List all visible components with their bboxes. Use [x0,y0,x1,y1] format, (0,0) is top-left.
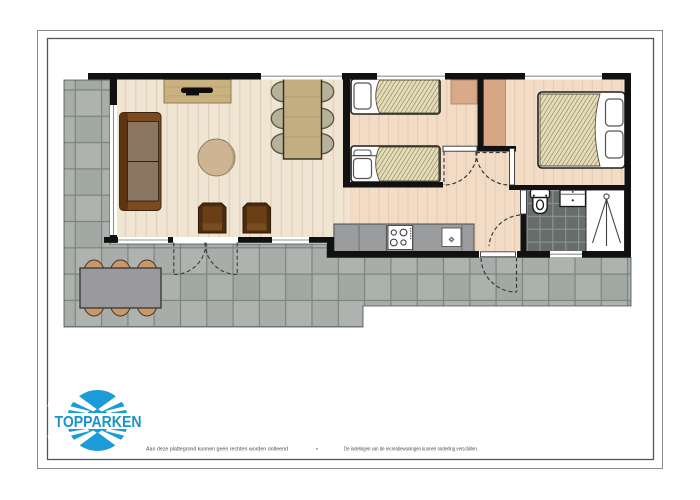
svg-text:TOPPARKEN: TOPPARKEN [55,414,142,431]
svg-text:De indelingen van de recreatie: De indelingen van de recreatiewoningen k… [344,447,478,453]
svg-text:Aan deze plattegrond kunnen ge: Aan deze plattegrond kunnen geen rechten… [146,447,288,453]
svg-text:•: • [316,447,318,453]
